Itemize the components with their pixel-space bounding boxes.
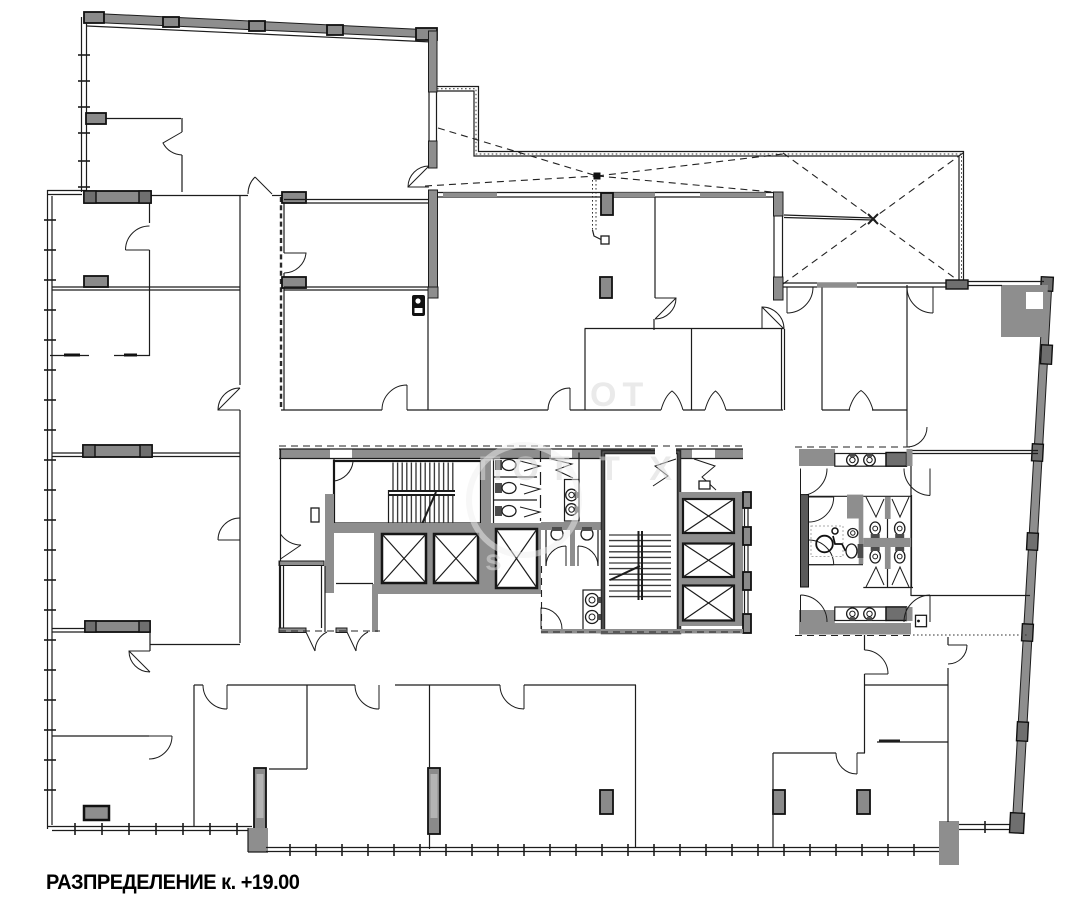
svg-text:s: s xyxy=(485,544,514,577)
svg-text:ОТ: ОТ xyxy=(590,376,649,414)
svg-text:ПОТ Т Х: ПОТ Т Х xyxy=(478,450,682,488)
svg-text:РАЗПРЕДЕЛЕНИЕ к. +19.00: РАЗПРЕДЕЛЕНИЕ к. +19.00 xyxy=(46,870,299,894)
